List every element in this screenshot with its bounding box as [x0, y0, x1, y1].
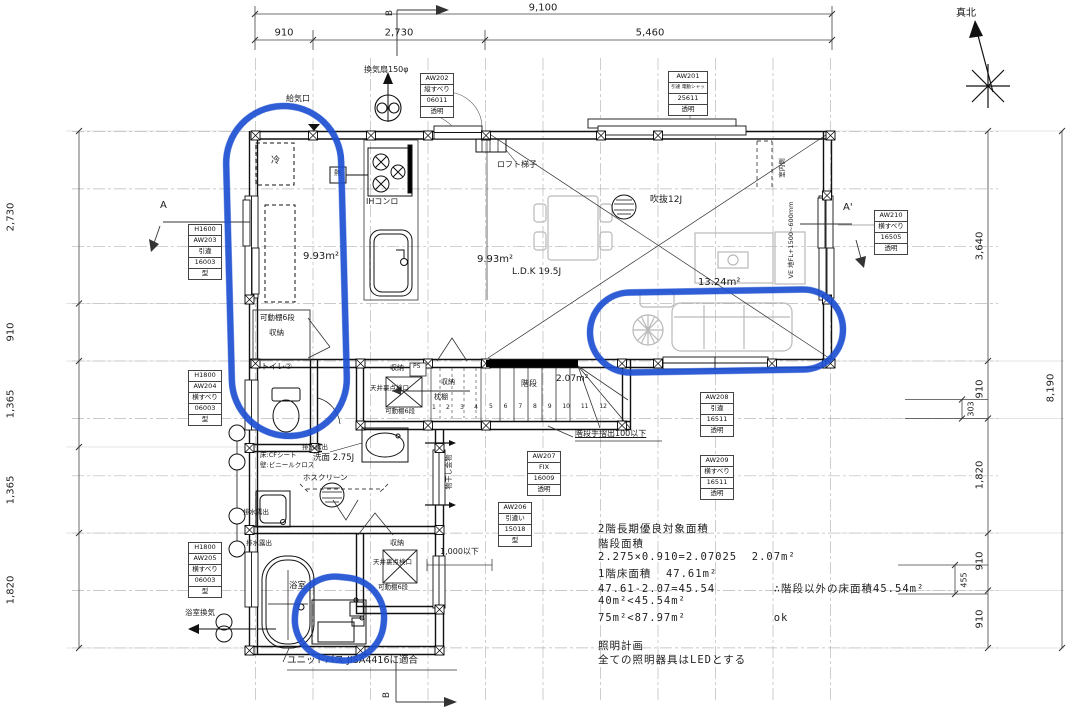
tag-row: 透明 — [700, 488, 734, 500]
plumbing-risers — [229, 425, 245, 557]
shelf6-label: 可動棚6段 — [260, 314, 295, 322]
dim-left-1365b: 1,365 — [6, 476, 17, 505]
dim-455: 455 — [960, 572, 969, 587]
tread-num: 6 — [504, 403, 508, 410]
tread-num: 9 — [548, 403, 552, 410]
north-label: 真北 — [956, 8, 976, 19]
tag-row: 型 — [498, 535, 532, 547]
ps-label: PS — [413, 364, 420, 371]
dim-right-910b: 910 — [975, 551, 986, 570]
kitchen-area: 9.93m² — [303, 251, 339, 262]
floor-finish-label: 床:CFシート — [260, 452, 296, 459]
dim-right-3640: 3,640 — [975, 232, 986, 261]
section-marks — [153, 10, 862, 702]
tread-numbers-5-12: 5 6 7 8 9 10 11 12 — [489, 403, 607, 410]
dim-left-2730: 2,730 — [6, 203, 17, 232]
bath-vent-arrow — [188, 624, 199, 634]
pillow-shelf-label: 枕棚 — [434, 394, 448, 402]
note-line: 40m²<45.54m² — [598, 595, 686, 607]
toilet-label: トイレ② — [261, 363, 292, 372]
dim-right-total: 8,190 — [1046, 374, 1057, 403]
dim-right-910c: 910 — [975, 609, 986, 628]
fridge-label: 冷 — [271, 157, 280, 167]
furniture-gray — [534, 196, 805, 351]
window-tag-aw202: AW202 縦すべり 06011 透明 — [420, 74, 454, 118]
drain2-label: 排水露出 — [243, 509, 269, 516]
note-line: 2.275×0.910=2.07025 2.07m² — [598, 551, 796, 563]
void-label: 吹抜12J — [650, 196, 682, 206]
tread-num: 3 — [460, 404, 464, 411]
tag-row: 透明 — [420, 106, 454, 118]
section-b-top: B — [385, 10, 395, 16]
tread-num: 2 — [446, 404, 450, 411]
washroom-label: 洗面 2.75J — [313, 454, 354, 463]
note-line: 照明計画 — [598, 638, 644, 653]
window-tag-aw205: H1800 AW205 横すべり 06003 型 — [188, 543, 222, 598]
loft-ladder-icon — [476, 139, 506, 152]
dim-left-910: 910 — [6, 322, 17, 341]
note-line: 2階長期優良対象面積 — [598, 521, 709, 536]
ldk-name: L.D.K 19.5J — [512, 268, 561, 278]
tag-row: 透明 — [874, 243, 908, 255]
drain1-label: 排水露出 — [302, 444, 328, 451]
stair-area-label: 2.07m² — [556, 375, 588, 385]
tread-num: 1 — [432, 404, 436, 411]
closet3-hatch-label: 天井裏点検口 — [373, 559, 412, 566]
unit-bath-note: ユニットバス JISA4416に適合 — [287, 656, 418, 666]
note-line: 全ての照明器具はLEDとする — [598, 652, 746, 667]
tag-row: 型 — [188, 268, 222, 280]
note-line: 75m²<87.97m² ok — [598, 612, 788, 624]
dim-right-1820: 1,820 — [975, 461, 986, 490]
bath-fixtures — [216, 556, 366, 648]
dim-top-2730: 2,730 — [385, 28, 414, 39]
section-a: A — [160, 200, 167, 211]
wall-posts — [245, 131, 835, 655]
tread-num: 5 — [489, 403, 493, 410]
closet3-label: 収納 — [390, 540, 404, 548]
floor-plan-sheet: 9,100 910 2,730 5,460 2,730 910 1,365 1,… — [0, 0, 1088, 724]
air-inlet-marker — [308, 124, 320, 131]
tag-row: 型 — [188, 414, 222, 426]
air-inlet-label: 給気口 — [286, 95, 310, 104]
drain3-label: 排水露出 — [246, 540, 272, 547]
tag-row: 横すべり — [874, 221, 908, 233]
window-tag-aw207: AW207 FIX 16009 透明 — [527, 452, 561, 496]
fl-height-note: VE 地FL+1500~600mm — [785, 202, 795, 279]
section-b-bottom: B — [382, 692, 392, 698]
tag-row: 型 — [188, 586, 222, 598]
storage-label: 収納 — [269, 329, 284, 337]
note-line: 1階床面積 47.61m² — [598, 566, 717, 581]
ldk-area: 9.93m² — [477, 254, 513, 265]
window-tag-aw210: AW210 横すべり 16505 透明 — [874, 211, 908, 255]
window-tag-aw204: H1800 AW204 横すべり 06003 型 — [188, 371, 222, 426]
window-tag-aw209: AW209 横すべり 16511 透明 — [700, 456, 734, 500]
window-tag-aw206: AW206 引違い 15018 型 — [498, 503, 532, 547]
tag-row: 縦すべり — [420, 84, 454, 96]
dim-top-total: 9,100 — [529, 3, 558, 14]
tread-num: 11 — [581, 403, 589, 410]
bath-vent-label: 浴室換気 — [185, 609, 215, 617]
dim-303: 303 — [967, 401, 976, 416]
wall-finish-label: 壁:ビニールクロス — [260, 462, 314, 469]
window-tag-aw208: AW208 引違 16511 透明 — [700, 393, 734, 437]
heat-detector-label: 熱 — [334, 170, 341, 178]
tread-num: 7 — [518, 403, 522, 410]
tag-row: 横すべり — [188, 564, 222, 576]
tread-num: 4 — [474, 404, 478, 411]
closet2-label: 収納 — [441, 379, 455, 387]
ih-stove-label: IHコンロ — [366, 198, 398, 207]
closet1-shelf-label: 可動棚6段 — [385, 408, 415, 415]
bath-label: 浴室 — [289, 582, 306, 591]
tread-num: 12 — [599, 403, 607, 410]
tread-num: 8 — [533, 403, 537, 410]
under-1000-label: 1,000以下 — [440, 548, 479, 557]
window-tag-aw203: H1600 AW203 引違 16003 型 — [188, 225, 222, 280]
tag-row: 横すべり — [188, 392, 222, 404]
laundry-bar-label: 物干し金物 — [444, 455, 454, 490]
loft-ladder-label: ロフト梯子 — [497, 161, 537, 170]
void-symbol — [612, 195, 636, 219]
tag-row: 引違 電動シャッター付 — [668, 82, 708, 94]
hoscreen-label: ホスクリーン — [303, 474, 348, 482]
tag-row: 横すべり — [700, 466, 734, 478]
stair-label: 階段 — [521, 380, 537, 389]
toilet-fixture — [272, 388, 340, 432]
closet1-hatch-label: 天井裏点検口 — [370, 385, 409, 392]
note-line: 47.61-2.07=45.54 ∴階段以外の床面積45.54m² — [598, 581, 924, 596]
dim-right-910a: 910 — [975, 379, 986, 398]
dim-top-910: 910 — [274, 28, 293, 39]
tread-num: 10 — [562, 403, 570, 410]
stair-handrail-wall — [486, 360, 578, 367]
tag-row: 透明 — [527, 484, 561, 496]
section-a-prime: A' — [843, 202, 853, 213]
tread-numbers-1-4: 1 2 3 4 — [432, 404, 478, 411]
dimension-lines — [79, 6, 1062, 648]
dim-top-5460: 5,460 — [636, 28, 665, 39]
interior-side-label: 室内側 — [776, 158, 786, 178]
tag-row: 透明 — [668, 104, 708, 116]
floorplan-drawing — [0, 0, 1088, 724]
window-tag-aw201: AW201 引違 電動シャッター付 25611 透明 — [668, 72, 708, 116]
dim-left-1365a: 1,365 — [6, 390, 17, 419]
closet1-label: 収納 — [390, 365, 404, 373]
handrail-note: 階段手摺出100以下 — [575, 430, 646, 439]
tag-row: 透明 — [700, 425, 734, 437]
living-area: 13.24m² — [698, 277, 740, 288]
dim-left-1820: 1,820 — [6, 576, 17, 605]
note-line: 階段面積 — [598, 536, 644, 551]
range-hood-label: 換気扇150φ — [364, 66, 409, 75]
closet3-shelf-label: 可動棚6段 — [378, 584, 408, 591]
